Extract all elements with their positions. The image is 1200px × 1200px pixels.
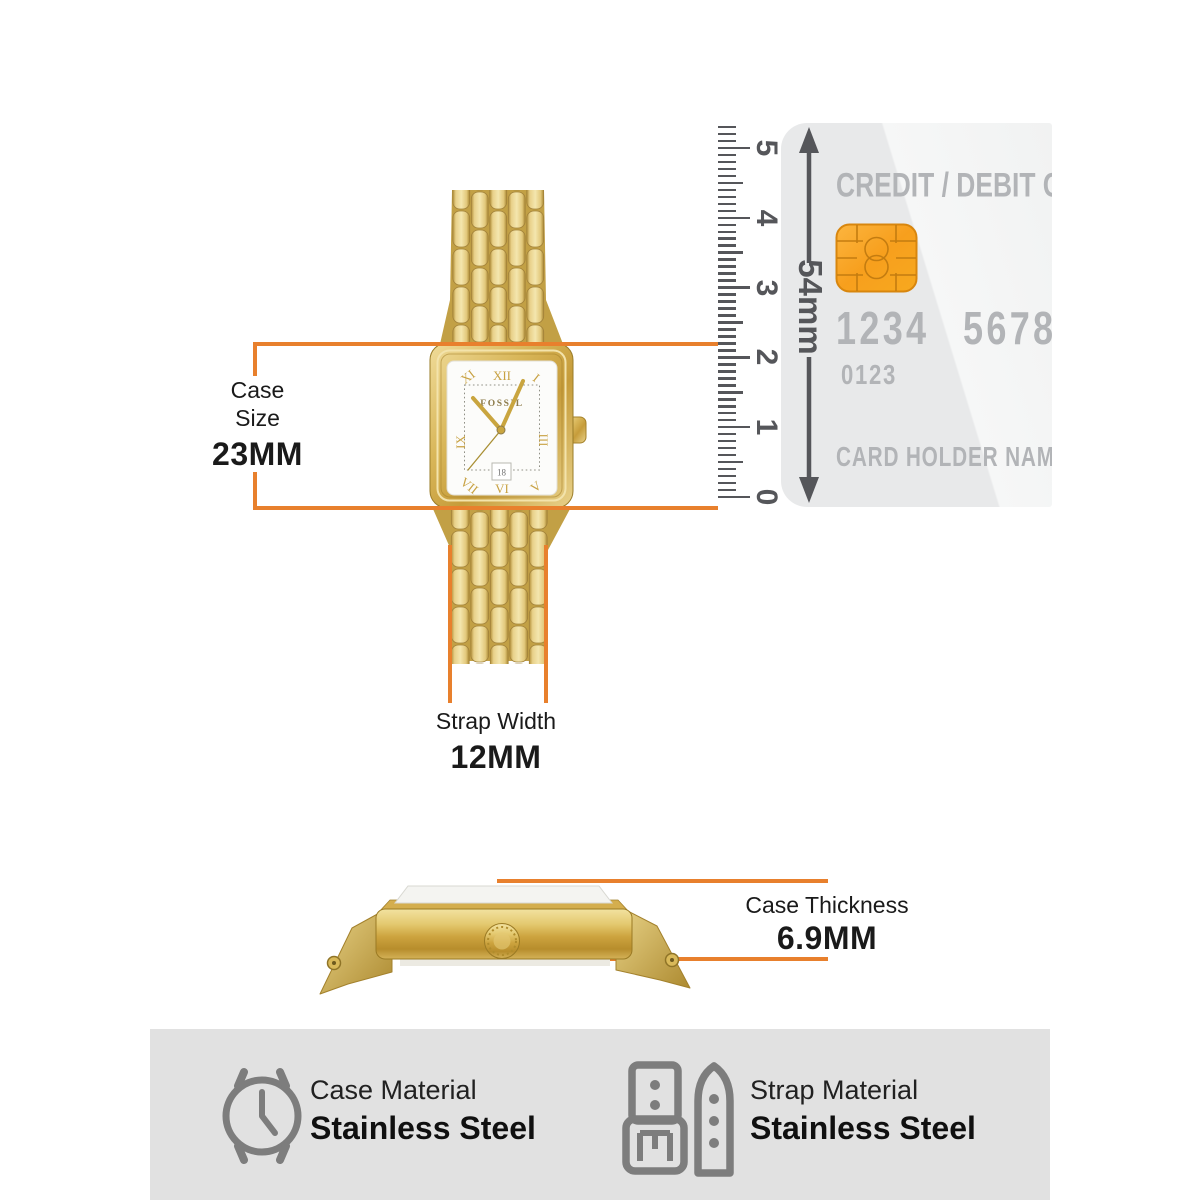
ruler-tick [718, 342, 736, 345]
bracelet-link [527, 249, 544, 285]
case-thickness-title: Case Thickness [707, 891, 947, 919]
card-height-label: 54mm [792, 247, 828, 367]
ruler-tick [718, 272, 736, 275]
ruler-number: 0 [749, 480, 783, 514]
bracelet-link [471, 268, 488, 304]
card-title: CREDIT / DEBIT CARD [836, 165, 1052, 205]
ruler-tick [718, 258, 736, 261]
bracelet-link [471, 512, 489, 548]
svg-text:III: III [536, 434, 551, 447]
ruler-tick [718, 454, 736, 457]
strap-width-line-right [544, 545, 548, 703]
case-material-block: Case Material Stainless Steel [310, 1075, 536, 1146]
card-holder-name: CARD HOLDER NAME [836, 441, 1052, 474]
hands-hub [497, 426, 505, 434]
bracelet-link [490, 287, 507, 323]
svg-text:IX: IX [453, 435, 468, 449]
ruler-tick [718, 237, 736, 240]
ruler-tick [718, 482, 736, 485]
side-crystal [395, 886, 612, 903]
ruler-tick [718, 349, 736, 352]
case-size-bracket-upper [253, 342, 257, 376]
ruler-tick [718, 307, 736, 310]
bracelet-link [471, 664, 489, 700]
bracelet-link [453, 287, 470, 323]
watch-case-icon [216, 1062, 308, 1170]
ruler-tick [718, 182, 743, 185]
materials-bar: Case Material Stainless Steel Strap Mate… [150, 1029, 1050, 1200]
ruler-tick [718, 363, 736, 366]
bracelet-link [451, 569, 469, 605]
strap-material-value: Stainless Steel [750, 1110, 976, 1146]
ruler-tick [718, 286, 750, 289]
bracelet-link [508, 183, 525, 190]
case-material-label: Case Material [310, 1075, 536, 1105]
ruler-tick [718, 231, 736, 234]
side-crown-face [494, 933, 511, 950]
ruler-tick [718, 133, 736, 136]
ruler-tick [718, 496, 750, 499]
brand-label: FOSSIL [480, 399, 523, 409]
bracelet-link [453, 183, 470, 209]
ruler-tick [718, 335, 736, 338]
ruler-tick [718, 419, 736, 422]
svg-text:VI: VI [495, 481, 509, 496]
ruler-tick [718, 433, 736, 436]
case-size-label: Case Size 23MM [195, 376, 320, 471]
card-number-left: 1234 [836, 303, 929, 356]
ruler-tick [718, 475, 736, 478]
bracelet-link [451, 607, 469, 643]
ruler-tick [718, 210, 736, 213]
ruler-tick [718, 196, 736, 199]
ruler-tick [718, 328, 736, 331]
bracelet-link [510, 512, 528, 548]
strap-width-label: Strap Width 12MM [396, 707, 596, 774]
ruler-tick [718, 440, 736, 443]
ruler-tick [718, 489, 736, 492]
strap-material-label: Strap Material [750, 1075, 976, 1105]
bracelet-link [527, 211, 544, 247]
bracelet-link [490, 211, 507, 247]
bracelet-link [510, 550, 528, 586]
bracelet-link [471, 306, 488, 342]
bracelet-link [508, 230, 525, 266]
ruler-tick [718, 126, 736, 129]
case-size-word2: Size [195, 404, 320, 432]
bracelet-link [490, 249, 507, 285]
ruler-tick [718, 175, 736, 178]
case-thickness-label: Case Thickness 6.9MM [707, 891, 947, 955]
bracelet-link [451, 531, 469, 567]
card-expiry: 0123 [841, 359, 897, 392]
strap-width-title: Strap Width [396, 707, 596, 735]
bracelet-link [508, 268, 525, 304]
ruler-number: 1 [749, 410, 783, 444]
strap-material-block: Strap Material Stainless Steel [750, 1075, 976, 1146]
ruler-tick [718, 356, 750, 359]
ruler-tick [718, 300, 736, 303]
ruler-tick [718, 447, 736, 450]
ruler-tick [718, 189, 736, 192]
ruler-tick [718, 140, 736, 143]
ruler-tick [718, 265, 736, 268]
ruler-tick [718, 154, 736, 157]
bracelet-link [490, 531, 508, 567]
ruler-tick [718, 398, 736, 401]
ruler-tick [718, 391, 743, 394]
case-size-word1: Case [195, 376, 320, 404]
ruler-tick [718, 293, 736, 296]
ruler-tick [718, 168, 736, 171]
ruler-tick [718, 217, 750, 220]
ruler-tick [718, 461, 743, 464]
ruler-number: 4 [749, 201, 783, 235]
ruler-tick [718, 468, 736, 471]
bracelet-link [490, 183, 507, 209]
case-size-bracket-lower [253, 472, 257, 510]
date-value: 18 [497, 468, 507, 478]
bracelet-link [527, 287, 544, 323]
ruler-tick [718, 203, 736, 206]
bracelet-link [490, 645, 508, 681]
bracelet-link [510, 664, 528, 700]
strap-width-line-left [448, 545, 452, 703]
svg-text:XII: XII [493, 368, 511, 383]
ruler-number: 3 [749, 271, 783, 305]
bracelet-link [510, 626, 528, 662]
watch-side-view [313, 876, 695, 1002]
ruler-tick [718, 412, 736, 415]
bracelet-link [508, 306, 525, 342]
ruler-tick [718, 314, 736, 317]
watch-dimension-infographic: FOSSIL XI XII I IX III VII VI V 18 01234… [0, 0, 1200, 1200]
ruler-tick [718, 147, 750, 150]
bracelet-link [510, 588, 528, 624]
ruler-number: 5 [749, 131, 783, 165]
bracelet-link [471, 550, 489, 586]
case-size-line-top [253, 342, 718, 346]
bracelet-link [490, 569, 508, 605]
bracelet-link [508, 192, 525, 228]
ruler-tick [718, 384, 736, 387]
watch-front-view: FOSSIL XI XII I IX III VII VI V 18 [410, 183, 610, 715]
case-material-value: Stainless Steel [310, 1110, 536, 1146]
ruler-tick [718, 370, 736, 373]
card-chip-icon [835, 223, 918, 293]
side-pin-left-dot [332, 961, 336, 965]
ruler-tick [718, 377, 736, 380]
bracelet-link [451, 645, 469, 681]
ruler-number: 2 [749, 340, 783, 374]
case-size-value: 23MM [195, 437, 320, 471]
card-number-right: 5678 [963, 303, 1052, 356]
side-pin-right-dot [670, 958, 674, 962]
ruler-tick [718, 224, 736, 227]
case-thickness-value: 6.9MM [707, 921, 947, 955]
bracelet-link [453, 211, 470, 247]
ruler-tick [718, 405, 736, 408]
bracelet-link [471, 626, 489, 662]
bracelet-link [471, 230, 488, 266]
bracelet-link [527, 183, 544, 209]
bracelet-link [453, 249, 470, 285]
strap-icon [622, 1057, 734, 1179]
bracelet-link [490, 607, 508, 643]
ruler-tick [718, 321, 743, 324]
ruler-tick [718, 161, 736, 164]
ruler-tick [718, 279, 736, 282]
case-size-line-bottom [253, 506, 718, 510]
bracelet-link [471, 183, 488, 190]
ruler-tick [718, 244, 736, 247]
ruler-tick [718, 251, 743, 254]
ruler-tick [718, 426, 750, 429]
bracelet-link [471, 588, 489, 624]
strap-width-value: 12MM [396, 740, 596, 774]
bracelet-link [471, 192, 488, 228]
